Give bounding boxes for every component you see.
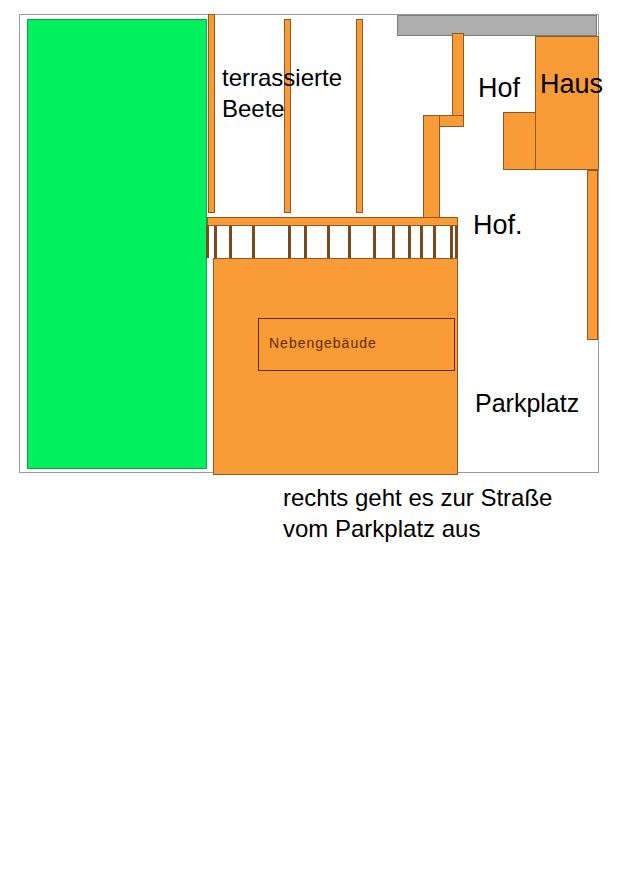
terraced-beds-label: terrassierte Beete [222, 62, 342, 124]
street-access-caption-line1: rechts geht es zur Straße [283, 482, 552, 513]
outbuilding-label-box: Nebengebäude [258, 318, 455, 371]
yard-top-label: Hof [478, 73, 520, 104]
yard-wall-upper [452, 33, 464, 127]
house-label: Haus [540, 69, 603, 100]
lawn-area [27, 19, 207, 469]
fence-pickets [206, 226, 458, 258]
terraced-beds-label-line2: Beete [222, 93, 342, 124]
fence-picket [408, 226, 411, 258]
street-access-caption: rechts geht es zur Straße vom Parkplatz … [283, 482, 552, 544]
fence-picket [229, 226, 232, 258]
fence-picket [373, 226, 376, 258]
yard-wall-lower [423, 115, 440, 226]
terrace-wall-1 [208, 14, 215, 213]
fence-picket [288, 226, 291, 258]
yard-mid-label: Hof. [473, 210, 523, 241]
fence-picket [348, 226, 351, 258]
fence-picket [304, 226, 307, 258]
fence-picket [420, 226, 423, 258]
fence-picket [392, 226, 395, 258]
street-access-caption-line2: vom Parkplatz aus [283, 513, 552, 544]
fence-picket [450, 226, 453, 258]
terrace-wall-3 [356, 19, 363, 213]
site-plan-canvas: Nebengebäude terrassierte Beete Hof Haus… [0, 0, 620, 876]
house-annex-block [503, 112, 536, 170]
fence-picket [455, 226, 458, 258]
outbuilding-label: Nebengebäude [269, 335, 377, 351]
street-strip [397, 15, 597, 36]
parking-label: Parkplatz [475, 389, 579, 418]
fence-rail [207, 217, 458, 226]
terraced-beds-label-line1: terrassierte [222, 62, 342, 93]
right-boundary-wall [587, 170, 598, 340]
fence-picket [433, 226, 436, 258]
fence-picket [252, 226, 255, 258]
fence-picket [214, 226, 217, 258]
house-block [535, 36, 599, 170]
fence-picket [206, 226, 209, 258]
fence-picket [327, 226, 330, 258]
